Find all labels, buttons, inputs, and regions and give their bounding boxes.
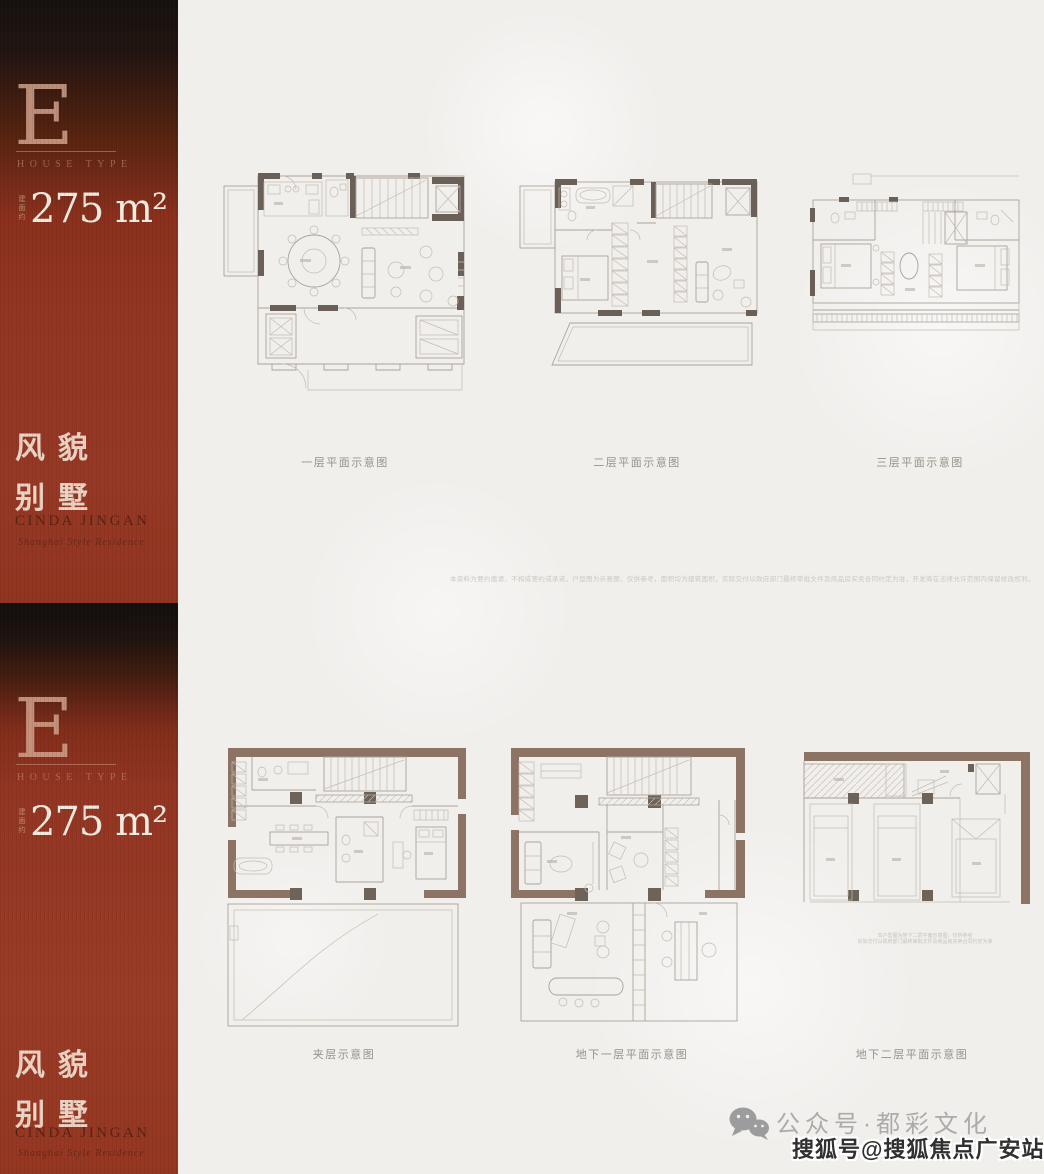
- floor-plan-label-mezzanine: 夹层示意图: [218, 1046, 470, 1062]
- house-type-letter: E: [14, 76, 74, 158]
- brand-script: Shanghai Style Residence: [18, 537, 145, 548]
- area-row: 建面约 275 m²: [16, 186, 167, 232]
- house-type-label: HOUSE TYPE: [17, 159, 133, 170]
- type-underline: [16, 764, 116, 765]
- area-value: 275 m²: [30, 186, 167, 232]
- basement2-note: 本户型图为地下二层平面示意图，仅供参考 实际交付以政府部门最终审批文件及商品房买…: [845, 933, 1005, 945]
- floor-plan-label-basement2: 地下二层平面示意图: [790, 1046, 1034, 1062]
- floor-plan-3f: [805, 170, 1035, 368]
- basement2-note-line2: 实际交付以政府部门最终审批文件及商品房买卖合同约定为准: [845, 939, 1005, 945]
- area-prefix: 建面约: [16, 195, 26, 222]
- tagline-line1: 风貌: [15, 424, 101, 474]
- sohu-watermark: 搜狐号@搜狐焦点广安站: [792, 1132, 1044, 1164]
- sidebar-panel-2: E HOUSE TYPE 建面约 275 m² 风貌 别墅 CINDA JING…: [0, 603, 178, 1174]
- wechat-icon: [728, 1106, 772, 1144]
- floor-plan-label-basement1: 地下一层平面示意图: [503, 1046, 761, 1062]
- disclaimer-text: 本资料为要约邀请，不构成要约或承诺，户型图为示意图，仅供参考，面积均为建筑面积，…: [450, 573, 1032, 583]
- floor-plan-mezzanine: [218, 742, 470, 1034]
- area-prefix: 建面约: [16, 808, 26, 835]
- brand-script: Shanghai Style Residence: [18, 1148, 145, 1159]
- tagline-line1: 风貌: [15, 1041, 101, 1091]
- type-underline: [16, 151, 116, 152]
- sidebar-panel-1: E HOUSE TYPE 建面约 275 m² 风貌 别墅 CINDA JING…: [0, 0, 178, 603]
- area-row: 建面约 275 m²: [16, 799, 167, 845]
- house-type-label: HOUSE TYPE: [17, 772, 133, 783]
- floor-plan-label-1f: 一层平面示意图: [212, 454, 478, 470]
- tagline: 风貌 别墅: [15, 424, 101, 524]
- brand-name: CINDA JINGAN: [15, 1125, 150, 1142]
- floor-plan-label-3f: 三层平面示意图: [805, 454, 1035, 470]
- floor-plan-1f: [212, 158, 478, 400]
- house-type-letter: E: [14, 689, 74, 771]
- floor-plan-basement1: [503, 740, 761, 1032]
- brand-name: CINDA JINGAN: [15, 513, 150, 530]
- flyer-page: E HOUSE TYPE 建面约 275 m² 风貌 别墅 CINDA JING…: [0, 0, 1044, 1174]
- area-value: 275 m²: [30, 799, 167, 845]
- floor-plan-label-2f: 二层平面示意图: [512, 454, 762, 470]
- floor-plan-2f: [512, 168, 762, 380]
